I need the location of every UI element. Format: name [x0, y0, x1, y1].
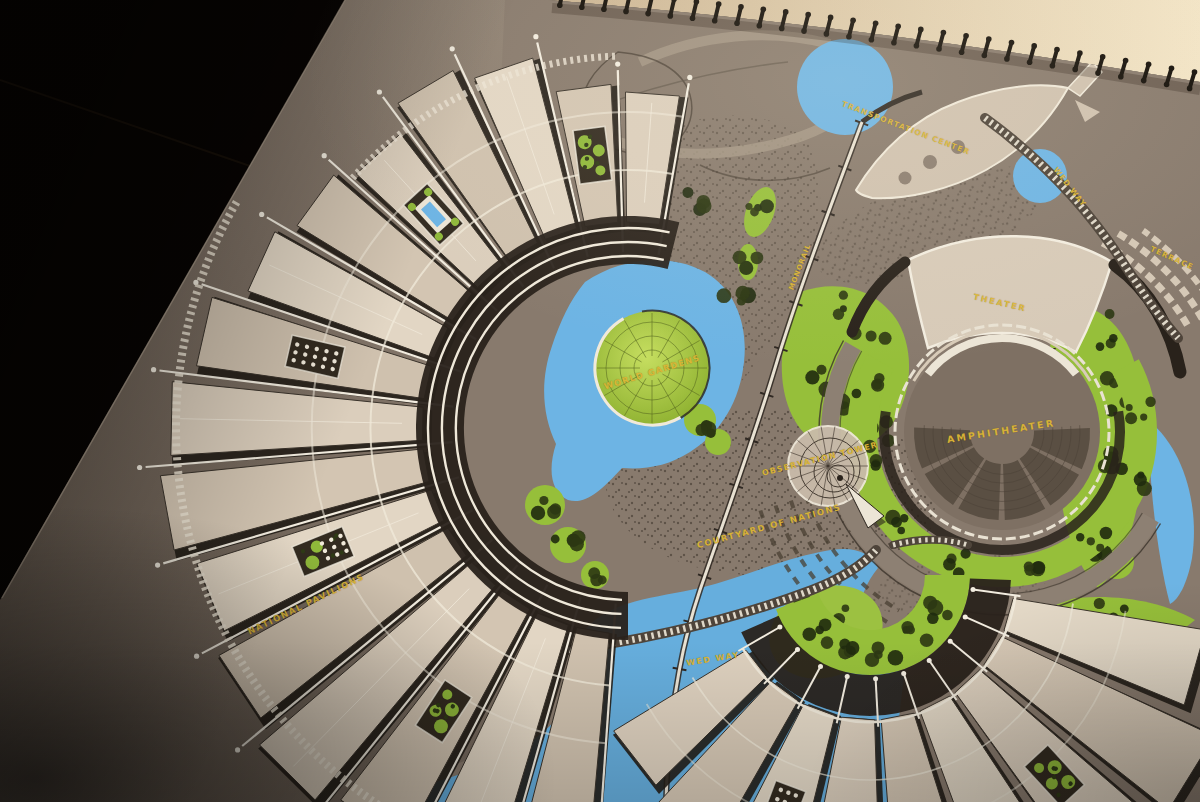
- world-gardens-dome: [595, 311, 710, 426]
- site-plan-drawing: [0, 0, 1200, 802]
- photo-stage: TRANSPORTATION CENTER WED WAY TERRACE TH…: [0, 0, 1200, 802]
